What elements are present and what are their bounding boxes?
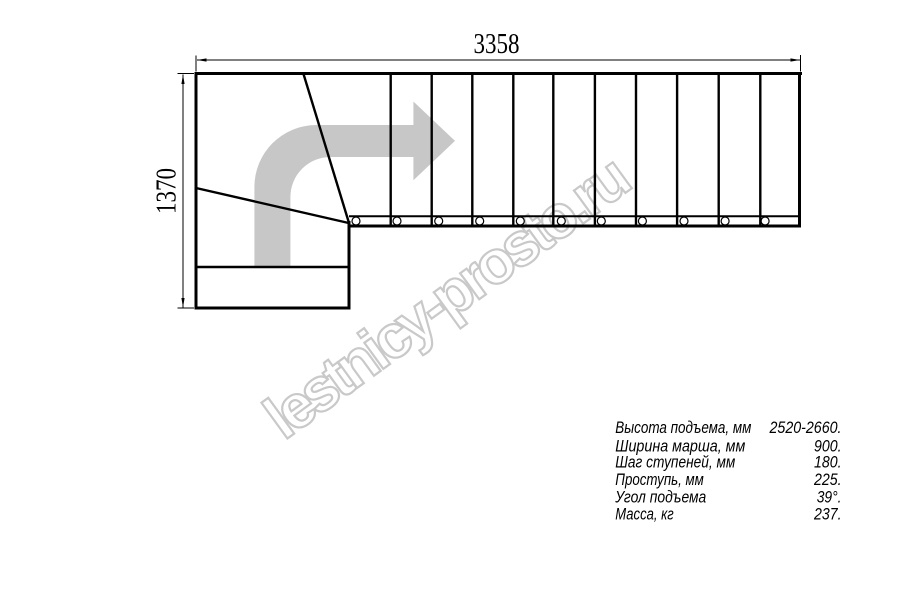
svg-text:Масса, кг: Масса, кг xyxy=(615,505,673,524)
svg-text:Высота подъема, мм: Высота подъема, мм xyxy=(615,418,751,437)
svg-text:237.: 237. xyxy=(813,505,841,524)
svg-text:180.: 180. xyxy=(814,453,842,472)
svg-text:Проступь, мм: Проступь, мм xyxy=(615,470,704,489)
svg-text:1370: 1370 xyxy=(151,168,183,214)
svg-text:3358: 3358 xyxy=(474,28,520,60)
svg-text:lestnicy-prosto.ru: lestnicy-prosto.ru xyxy=(252,141,643,451)
svg-text:2520-2660.: 2520-2660. xyxy=(769,418,842,437)
svg-text:225.: 225. xyxy=(813,470,841,489)
svg-text:Шаг ступеней, мм: Шаг ступеней, мм xyxy=(615,453,735,472)
